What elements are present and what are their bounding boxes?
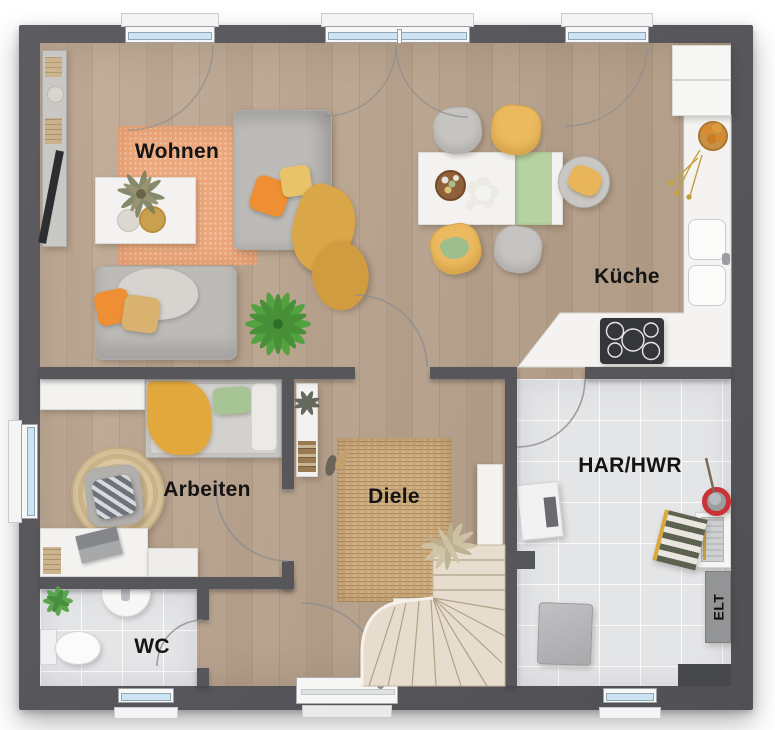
mop-bucket [702,487,731,516]
desk-side-table [148,548,198,577]
window [603,688,657,703]
yellow-daybed-throw [147,381,211,455]
green-pillow [212,386,252,416]
faucet [722,253,730,265]
window [21,424,38,519]
cooktop [600,318,664,364]
room-label-har-hwr: HAR/HWR [578,454,682,478]
corner-duct-niche [678,664,731,686]
window-sill [599,707,661,719]
tan-pillow [121,294,162,335]
wall-wc-east-upper [197,589,209,620]
coffee-table-plate [117,209,140,232]
window-mullion [397,29,402,44]
window-sill [561,13,653,27]
window-sill [114,707,178,719]
elt-label: ELT [710,594,726,621]
room-label-diele: Diele [368,485,420,509]
toilet-bowl [55,631,101,665]
door-panel-line [301,689,395,695]
room-label-kueche: Küche [594,265,660,289]
window [118,688,174,703]
striped-pillow [90,473,137,520]
sink-basin [688,265,726,306]
wc-faucet [121,589,130,601]
window-sill [121,13,219,27]
shelf-books [298,441,316,472]
wall-office-wc [40,577,294,589]
window-glass [606,693,654,701]
entrance-door [296,677,398,704]
room-label-wc: WC [134,635,170,659]
wall-wc-east-lower [197,668,209,686]
window-double [325,26,470,43]
hallway-rug [337,438,452,602]
book-stack [45,57,62,77]
wall-stub [517,551,535,569]
window-glass [121,693,171,701]
room-label-wohnen: Wohnen [135,140,219,164]
window [565,26,649,43]
green-table-runner [515,152,552,225]
stair-wall-panel [477,464,503,556]
fruit-bowl [698,121,728,151]
wall-har-west [505,379,517,686]
desk-books [43,547,61,574]
floor-plan-canvas: ELT [0,0,775,730]
window [125,26,215,43]
gold-tray [139,206,166,233]
entrance-step [302,705,392,718]
window-glass [27,427,35,516]
wall-divider-center [430,367,517,379]
wall-divider-east [585,367,731,379]
window-glass [128,32,212,40]
room-label-arbeiten: Arbeiten [163,478,251,502]
window-sill [8,420,22,523]
sink-basin [688,219,726,260]
wall-divider-west [40,367,355,379]
wall-office-east-upper [282,379,294,489]
decor-bowl [435,170,466,201]
office-wall-shelf [40,379,145,410]
cabinet-split-line [673,79,730,81]
electrical-panel: ELT [705,571,731,643]
book-stack [45,118,62,144]
door-handle [377,682,384,689]
white-bolster [251,383,277,451]
washing-machine [537,602,593,666]
window-glass [568,32,646,40]
decor-plate [47,86,64,103]
stair-first-step [393,598,435,613]
window-sill [321,13,474,27]
